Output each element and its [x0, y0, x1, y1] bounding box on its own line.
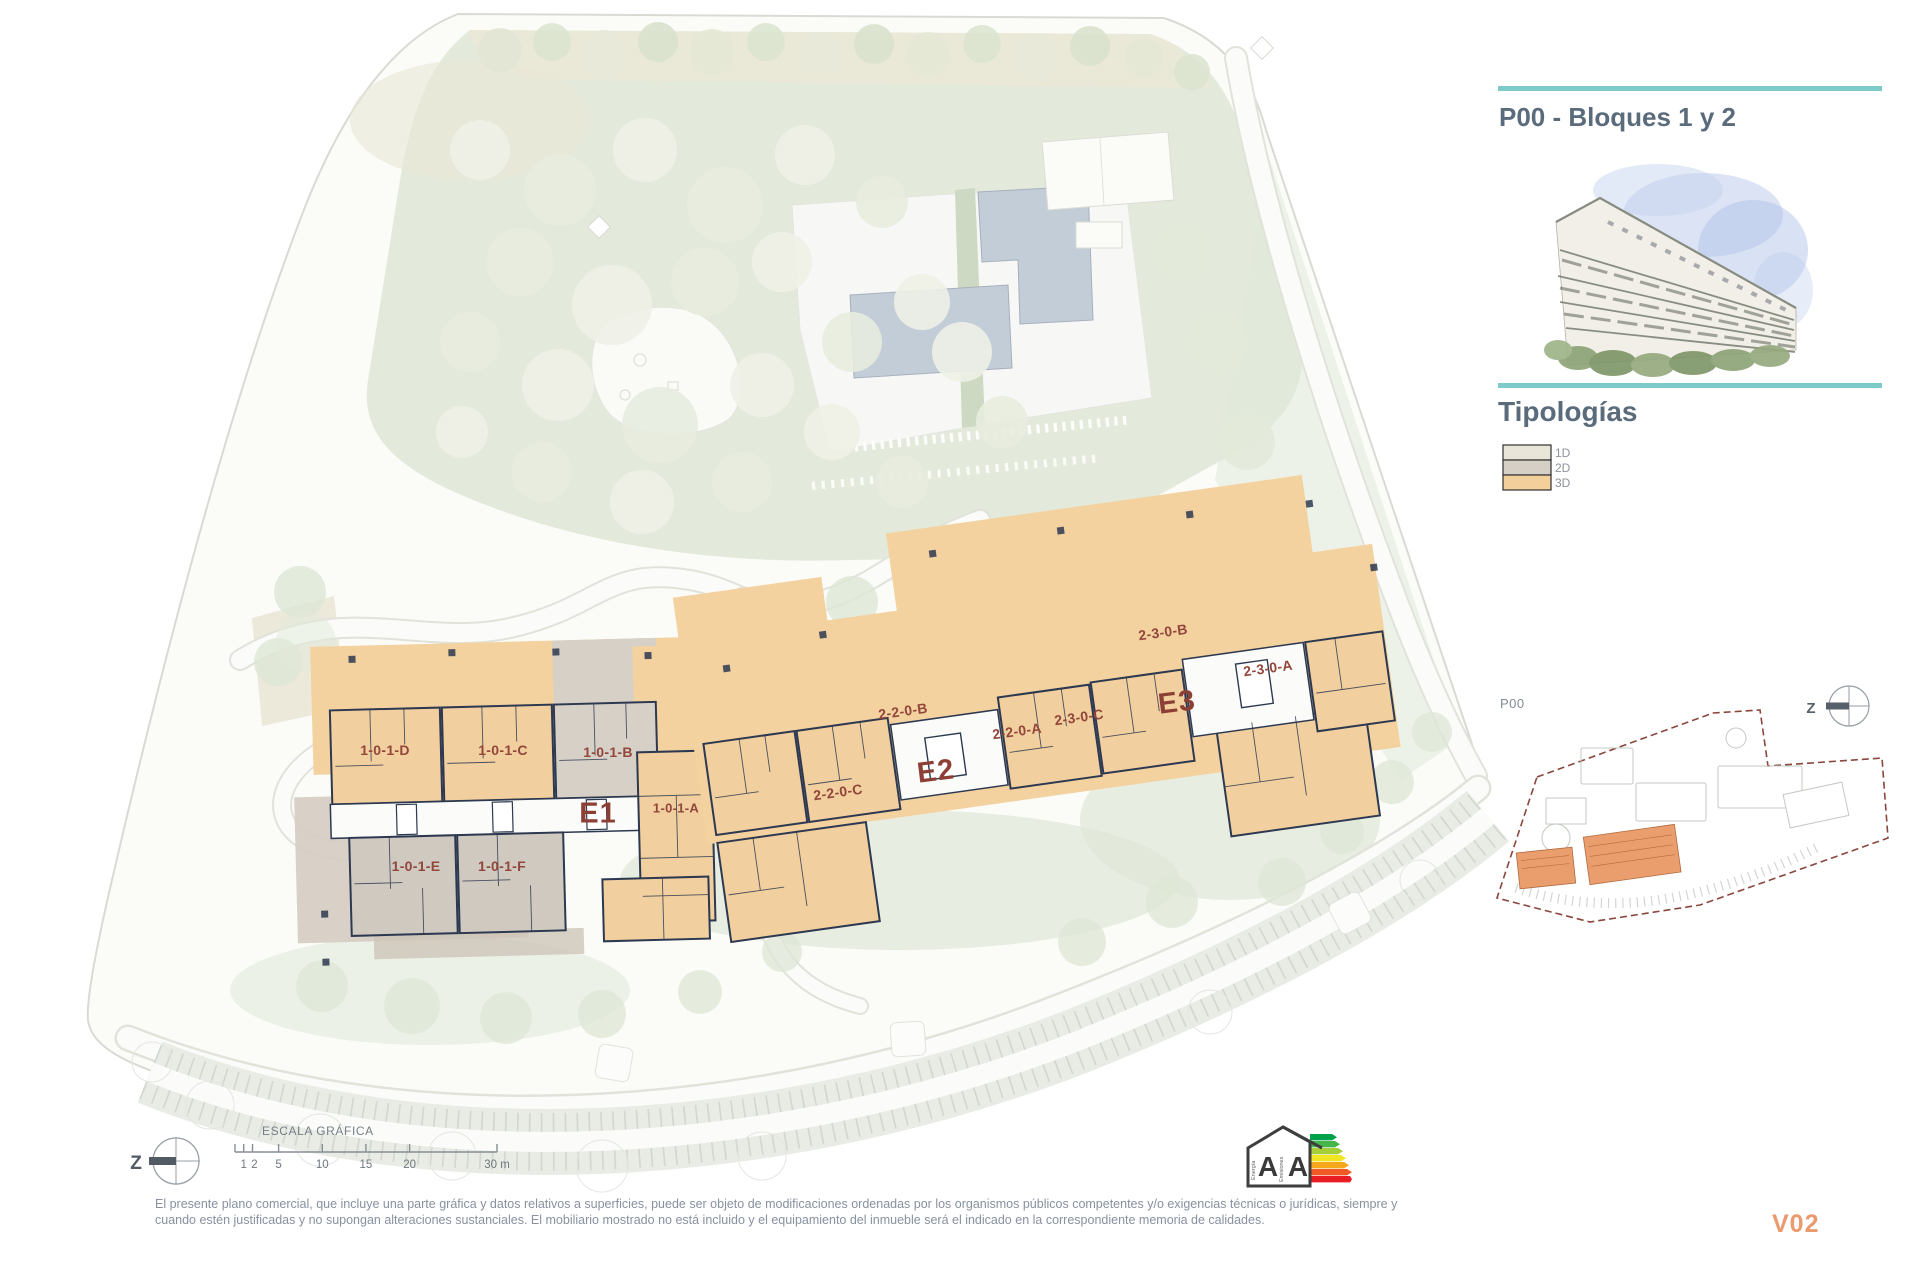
disclaimer-line-1: El presente plano comercial, que incluye… — [155, 1196, 1465, 1212]
scale-bar: 1 2 5 10 15 20 30 m — [218, 1138, 518, 1178]
legend-label-3d: 3D — [1555, 476, 1571, 490]
north-compass: Z — [120, 1128, 210, 1194]
block-label-e2: E2 — [915, 753, 956, 790]
typology-legend: 1D 2D 3D — [1502, 440, 1632, 500]
legend-swatch-2d — [1503, 460, 1551, 475]
plan-sheet: 1-0-1-D 1-0-1-C 1-0-1-B 1-0-1-A E1 1-0-1… — [0, 0, 1920, 1280]
scale-label: 10 — [316, 1159, 329, 1171]
building-render-image — [1538, 160, 1814, 380]
legend-swatch-1d — [1503, 445, 1551, 460]
keyplan-map: Z — [1486, 678, 1898, 940]
emissions-word: Emisiones — [1279, 1156, 1285, 1182]
emissions-letter: A — [1288, 1151, 1308, 1182]
scale-label: 5 — [275, 1159, 281, 1171]
legend-swatch-3d — [1503, 475, 1551, 490]
unit-label-1-0-1-E: 1-0-1-E — [392, 858, 441, 874]
keyplan-compass-letter: Z — [1806, 700, 1815, 717]
energy-scale-bars — [1310, 1134, 1352, 1182]
tipologias-heading: Tipologías — [1498, 396, 1638, 428]
accent-rule-middle — [1498, 383, 1882, 388]
accent-rule-top — [1498, 86, 1882, 91]
scale-title: ESCALA GRÁFICA — [262, 1124, 374, 1138]
scale-label: 15 — [360, 1159, 373, 1171]
unit-label-1-0-1-D: 1-0-1-D — [360, 742, 410, 758]
scale-label: 20 — [403, 1159, 416, 1171]
block-label-e1: E1 — [579, 798, 616, 831]
unit-label-1-0-1-B: 1-0-1-B — [583, 744, 633, 760]
block-label-e3: E3 — [1156, 684, 1197, 721]
energy-rating-icon: A A Energía Emisiones — [1236, 1118, 1352, 1194]
legend-label-2d: 2D — [1555, 461, 1571, 475]
north-compass-letter: Z — [130, 1153, 142, 1174]
energy-word: Energía — [1251, 1160, 1257, 1180]
page-title: P00 - Bloques 1 y 2 — [1499, 102, 1736, 133]
disclaimer-text: El presente plano comercial, que incluye… — [155, 1196, 1465, 1228]
scale-label: 30 m — [484, 1159, 510, 1171]
disclaimer-line-2: cuando estén justificadas y no supongan … — [155, 1212, 1465, 1228]
version-tag: V02 — [1772, 1210, 1819, 1239]
keyplan-highlighted-blocks — [1516, 824, 1681, 888]
scale-label: 1 — [240, 1159, 246, 1171]
keyplan-compass: Z — [1806, 686, 1869, 726]
scale-label: 2 — [251, 1159, 257, 1171]
unit-label-1-0-1-A: 1-0-1-A — [653, 801, 699, 816]
energy-letter: A — [1258, 1151, 1278, 1182]
unit-label-1-0-1-C: 1-0-1-C — [478, 742, 528, 758]
legend-label-1d: 1D — [1555, 446, 1571, 460]
unit-label-1-0-1-F: 1-0-1-F — [478, 858, 526, 874]
